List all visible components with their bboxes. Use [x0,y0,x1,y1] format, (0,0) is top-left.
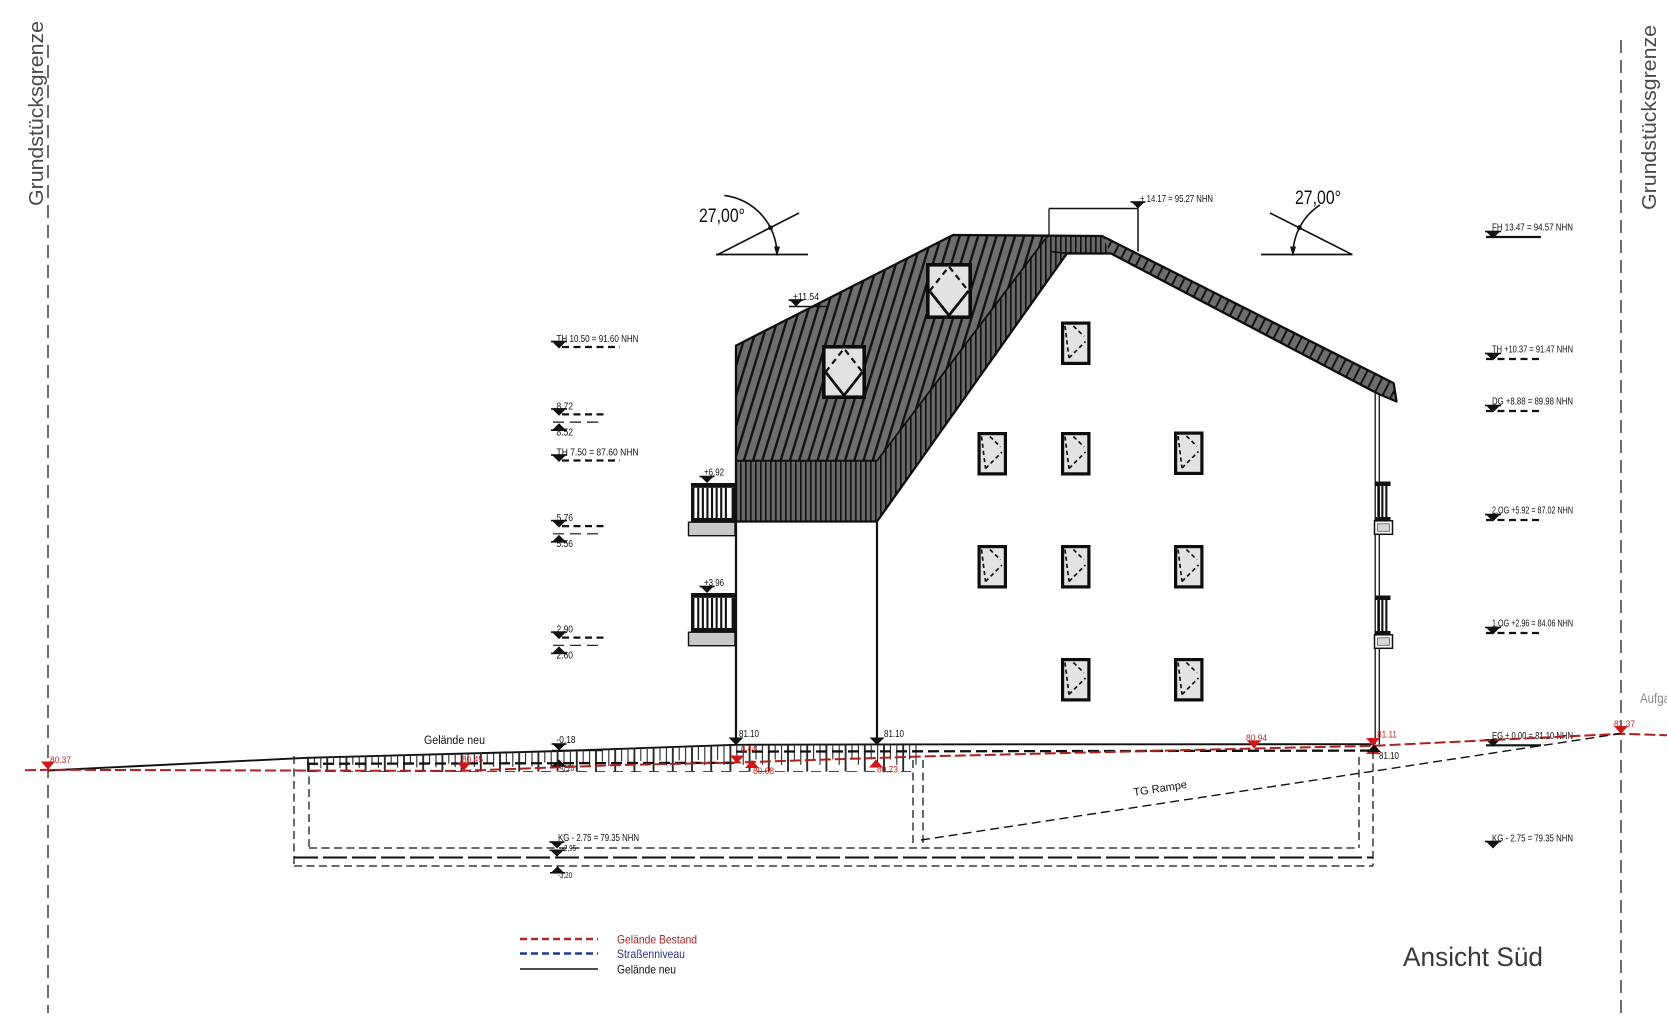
svg-text:-3,20: -3,20 [558,870,572,880]
svg-text:2.60: 2.60 [557,650,574,662]
svg-text:TH 7.50 = 87.60 NHN: TH 7.50 = 87.60 NHN [557,447,639,459]
svg-text:80.94: 80.94 [1246,733,1267,744]
svg-text:81.10: 81.10 [1379,751,1399,762]
svg-text:0,44: 0,44 [741,744,756,755]
svg-text:FH 13.47 = 94.57 NHN: FH 13.47 = 94.57 NHN [1492,222,1573,234]
svg-text:80.68: 80.68 [753,766,774,777]
svg-text:27,00°: 27,00° [699,205,745,227]
svg-text:Grundstücksgrenze: Grundstücksgrenze [25,21,48,206]
svg-text:-2,95: -2,95 [562,843,576,853]
svg-text:2.OG +5.92 = 87.02 NHN: 2.OG +5.92 = 87.02 NHN [1492,505,1573,517]
svg-text:81.37: 81.37 [1614,719,1635,730]
svg-text:80.45: 80.45 [462,755,483,766]
svg-text:81.10: 81.10 [884,729,904,740]
svg-text:TH +10.37 = 91.47 NHN: TH +10.37 = 91.47 NHN [1492,344,1573,356]
svg-text:Aufga: Aufga [1640,691,1667,706]
svg-text:80.37: 80.37 [50,755,71,766]
svg-text:27,00°: 27,00° [1295,187,1341,209]
svg-text:80.73: 80.73 [877,765,898,776]
svg-text:Straßenniveau: Straßenniveau [617,947,685,961]
svg-text:Gelände neu: Gelände neu [424,735,485,747]
svg-text:KG - 2.75 = 79.35 NHN: KG - 2.75 = 79.35 NHN [1492,833,1573,845]
svg-text:DG +8.88 = 89.98 NHN: DG +8.88 = 89.98 NHN [1492,396,1573,408]
svg-text:+ 14.17 = 95.27 NHN: + 14.17 = 95.27 NHN [1140,193,1213,205]
svg-text:8.52: 8.52 [557,426,574,438]
svg-text:Ansicht Süd: Ansicht Süd [1403,942,1543,972]
svg-text:1.OG +2.96 = 84.06 NHN: 1.OG +2.96 = 84.06 NHN [1492,618,1573,630]
svg-text:81.10: 81.10 [739,729,759,740]
svg-text:5.56: 5.56 [557,538,574,550]
svg-text:Gelände neu: Gelände neu [617,963,676,977]
svg-text:TH 10.50 = 91.60 NHN: TH 10.50 = 91.60 NHN [557,333,639,345]
svg-text:Grundstücksgrenze: Grundstücksgrenze [1638,25,1661,210]
svg-text:Gelände Bestand: Gelände Bestand [617,933,697,947]
svg-text:81.11: 81.11 [1377,730,1397,741]
